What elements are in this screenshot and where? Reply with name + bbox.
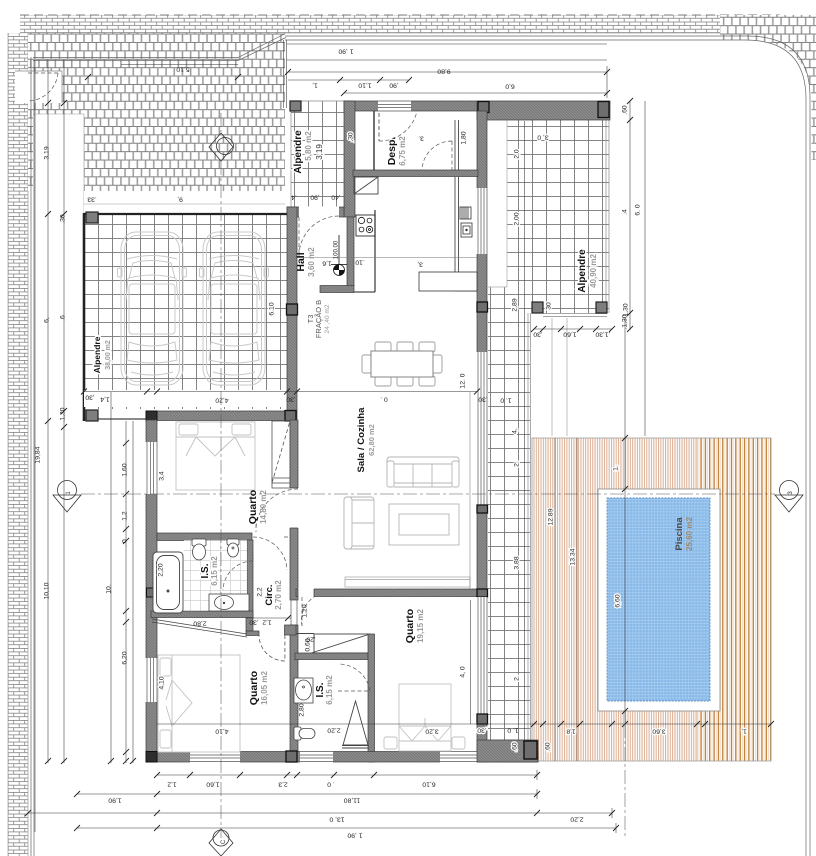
svg-text:3.: 3. xyxy=(418,135,424,142)
svg-text:25,60 m2: 25,60 m2 xyxy=(685,517,694,551)
svg-text:Alpendre: Alpendre xyxy=(92,336,102,373)
svg-text:2,80: 2,80 xyxy=(299,703,306,716)
svg-text:1,: 1, xyxy=(312,82,318,89)
svg-text:1,6: 1,6 xyxy=(322,260,332,267)
svg-text:2,20: 2,20 xyxy=(570,816,583,823)
svg-text:4,10: 4,10 xyxy=(215,728,228,735)
svg-text:1,8: 1,8 xyxy=(566,728,576,735)
svg-text:,30: ,30 xyxy=(477,727,487,734)
svg-text:6,75 m2: 6,75 m2 xyxy=(398,136,407,166)
svg-text:,20: ,20 xyxy=(306,636,316,643)
svg-text:.10: .10 xyxy=(355,259,365,266)
svg-text:2,70 m2: 2,70 m2 xyxy=(274,580,283,610)
svg-text:Piscina: Piscina xyxy=(674,517,685,551)
svg-text:.60: .60 xyxy=(545,742,552,752)
svg-text:1. 0: 1. 0 xyxy=(507,727,519,734)
svg-text:.33: .33 xyxy=(87,196,97,203)
svg-text:Sala / Cozinha: Sala / Cozinha xyxy=(356,407,367,473)
svg-text:,30: ,30 xyxy=(533,331,543,338)
svg-text:9,80: 9,80 xyxy=(437,68,450,75)
svg-text:4, 0: 4, 0 xyxy=(460,666,467,678)
svg-text:. 0: . 0 xyxy=(327,781,335,788)
svg-text:,30: ,30 xyxy=(348,132,355,142)
svg-text:1,20: 1,20 xyxy=(302,604,309,617)
svg-text:.60: .60 xyxy=(622,105,629,115)
svg-text:14,80 m2: 14,80 m2 xyxy=(259,490,268,524)
svg-text:6. 0: 6. 0 xyxy=(635,204,642,216)
svg-text:.4: .4 xyxy=(291,194,297,201)
svg-text:Quarto: Quarto xyxy=(247,490,259,524)
svg-text:6,15 m2: 6,15 m2 xyxy=(325,675,334,705)
svg-text:1 ,90: 1 ,90 xyxy=(338,48,353,55)
svg-text:,1,30: ,1,30 xyxy=(595,331,610,338)
svg-text:Alpendre: Alpendre xyxy=(293,130,304,174)
svg-text:6,: 6, xyxy=(44,317,51,323)
svg-text:2.: 2. xyxy=(514,675,521,681)
svg-text:1,10: 1,10 xyxy=(358,82,371,89)
svg-text:4,10: 4,10 xyxy=(159,676,166,689)
svg-text:0 .: 0 . xyxy=(380,396,388,403)
svg-text:,90: ,90 xyxy=(310,194,320,201)
svg-text:Desp.: Desp. xyxy=(386,137,398,166)
svg-text:.6: .6 xyxy=(60,315,67,321)
svg-text:16,05 m2: 16,05 m2 xyxy=(260,671,269,705)
svg-text:3,19: 3,19 xyxy=(315,144,324,160)
svg-text:4,20: 4,20 xyxy=(215,397,228,404)
svg-text:Hall: Hall xyxy=(295,252,307,271)
svg-text:4,: 4, xyxy=(512,428,519,434)
svg-text:6.10: 6.10 xyxy=(269,302,276,315)
svg-text:1,: 1, xyxy=(741,728,747,735)
svg-text:.4: .4 xyxy=(622,209,629,215)
svg-text:2,20: 2,20 xyxy=(158,563,165,576)
svg-text:9,: 9, xyxy=(177,196,183,203)
svg-text:1,60: 1,60 xyxy=(206,781,219,788)
svg-text:6,10: 6,10 xyxy=(422,781,435,788)
svg-text:1,60: 1,60 xyxy=(563,331,576,338)
svg-text:3,60 m2: 3,60 m2 xyxy=(307,247,316,277)
svg-text:13, 0: 13, 0 xyxy=(329,816,344,823)
svg-text:5,80 m2: 5,80 m2 xyxy=(304,131,313,161)
svg-text:40,90 m2: 40,90 m2 xyxy=(589,254,598,288)
svg-text:3,: 3, xyxy=(417,261,423,268)
svg-text:2,89: 2,89 xyxy=(512,298,519,311)
svg-text:30: 30 xyxy=(546,302,553,310)
svg-text:2,20: 2,20 xyxy=(327,727,340,734)
svg-text:1,4: 1,4 xyxy=(100,396,110,403)
svg-text:3,20: 3,20 xyxy=(425,728,438,735)
svg-text:6,20: 6,20 xyxy=(122,651,129,664)
svg-text:Quarto: Quarto xyxy=(404,609,416,643)
svg-text:12.89: 12.89 xyxy=(548,508,555,525)
svg-text:6,15 m2: 6,15 m2 xyxy=(210,556,219,586)
svg-text:FRAÇÃO B: FRAÇÃO B xyxy=(314,300,323,338)
svg-text:,30: ,30 xyxy=(478,396,488,403)
svg-text:C: C xyxy=(221,839,227,844)
svg-text:1,90: 1,90 xyxy=(108,797,121,804)
svg-text:1.: 1. xyxy=(613,465,620,471)
svg-text:Alpendre: Alpendre xyxy=(577,249,588,293)
svg-text:,40: ,40 xyxy=(331,194,341,201)
svg-text:19,15 m2: 19,15 m2 xyxy=(416,609,425,643)
svg-text:3, 0: 3, 0 xyxy=(537,134,549,141)
svg-text:6,60: 6,60 xyxy=(615,594,622,607)
svg-text:1,2: 1,2 xyxy=(167,781,177,788)
svg-text:.60: .60 xyxy=(512,742,519,752)
svg-text:2,2: 2,2 xyxy=(257,587,264,597)
svg-text:2,00: 2,00 xyxy=(514,212,521,225)
svg-text:11,80: 11,80 xyxy=(344,797,361,804)
svg-text:1,30: 1,30 xyxy=(623,303,630,316)
svg-text:3,88: 3,88 xyxy=(514,556,521,569)
svg-text:3,4: 3,4 xyxy=(159,471,166,481)
svg-text:38,00 m2: 38,00 m2 xyxy=(105,340,112,370)
svg-text:2,0: 2,0 xyxy=(514,149,521,159)
svg-text:. 0: . 0 xyxy=(122,539,129,547)
svg-text:62,80 m2: 62,80 m2 xyxy=(367,424,376,456)
svg-text:6,0: 6,0 xyxy=(505,83,515,90)
svg-text:19,84: 19,84 xyxy=(35,446,42,463)
svg-text:10,10: 10,10 xyxy=(44,582,51,599)
svg-text:1,2: 1,2 xyxy=(122,511,129,521)
svg-text:2,80: 2,80 xyxy=(193,620,206,627)
svg-text:,30: ,30 xyxy=(249,619,259,626)
svg-text:,90: ,90 xyxy=(389,82,399,89)
svg-text:,30: ,30 xyxy=(286,396,296,403)
svg-text:Quarto: Quarto xyxy=(248,671,260,705)
svg-text:3,19: 3,19 xyxy=(44,146,51,159)
svg-text:3,60: 3,60 xyxy=(652,728,665,735)
svg-text:,30: ,30 xyxy=(85,394,95,401)
svg-text:1,2: 1,2 xyxy=(262,619,272,626)
svg-text:2,3: 2,3 xyxy=(278,781,288,788)
svg-text:1. 0: 1. 0 xyxy=(500,397,512,404)
svg-text:12. 0: 12. 0 xyxy=(460,373,467,388)
svg-text:2.: 2. xyxy=(514,461,521,467)
svg-text:13.34: 13.34 xyxy=(570,548,577,565)
svg-text:1,60: 1,60 xyxy=(122,463,129,476)
svg-text:24 ,40 m2: 24 ,40 m2 xyxy=(324,304,331,333)
svg-text:1 ,90: 1 ,90 xyxy=(347,832,362,839)
svg-text:100.00: 100.00 xyxy=(334,240,340,259)
svg-text:.30: .30 xyxy=(60,214,67,224)
svg-text:1,80: 1,80 xyxy=(461,131,468,144)
svg-text:10.: 10. xyxy=(106,584,113,594)
svg-text:5,10: 5,10 xyxy=(176,66,189,73)
svg-text:.1,30: .1,30 xyxy=(60,407,67,422)
